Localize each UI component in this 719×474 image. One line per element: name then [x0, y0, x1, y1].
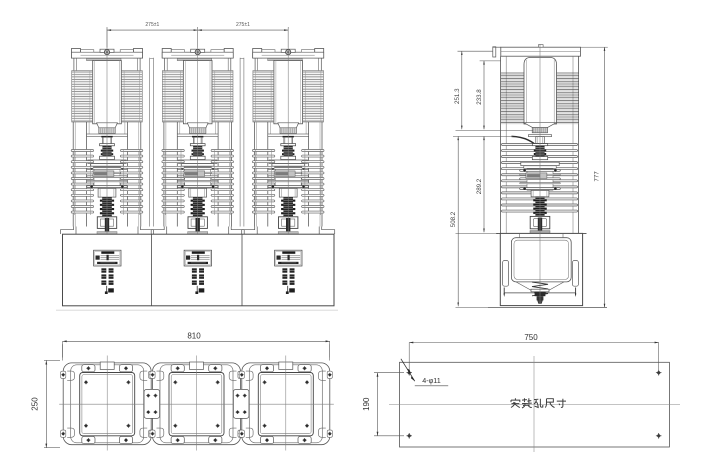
- svg-text:810: 810: [187, 332, 201, 341]
- svg-text:275±1: 275±1: [145, 22, 159, 28]
- svg-text:777: 777: [594, 171, 601, 182]
- svg-text:508.2: 508.2: [450, 211, 457, 227]
- svg-text:750: 750: [524, 333, 538, 342]
- svg-text:190: 190: [362, 397, 371, 411]
- svg-text:275±1: 275±1: [236, 22, 250, 28]
- svg-text:251.3: 251.3: [454, 88, 461, 104]
- svg-text:250: 250: [31, 397, 40, 411]
- svg-text:289.2: 289.2: [476, 178, 483, 194]
- svg-text:233.8: 233.8: [476, 89, 483, 105]
- svg-text:4-φ11: 4-φ11: [422, 376, 441, 385]
